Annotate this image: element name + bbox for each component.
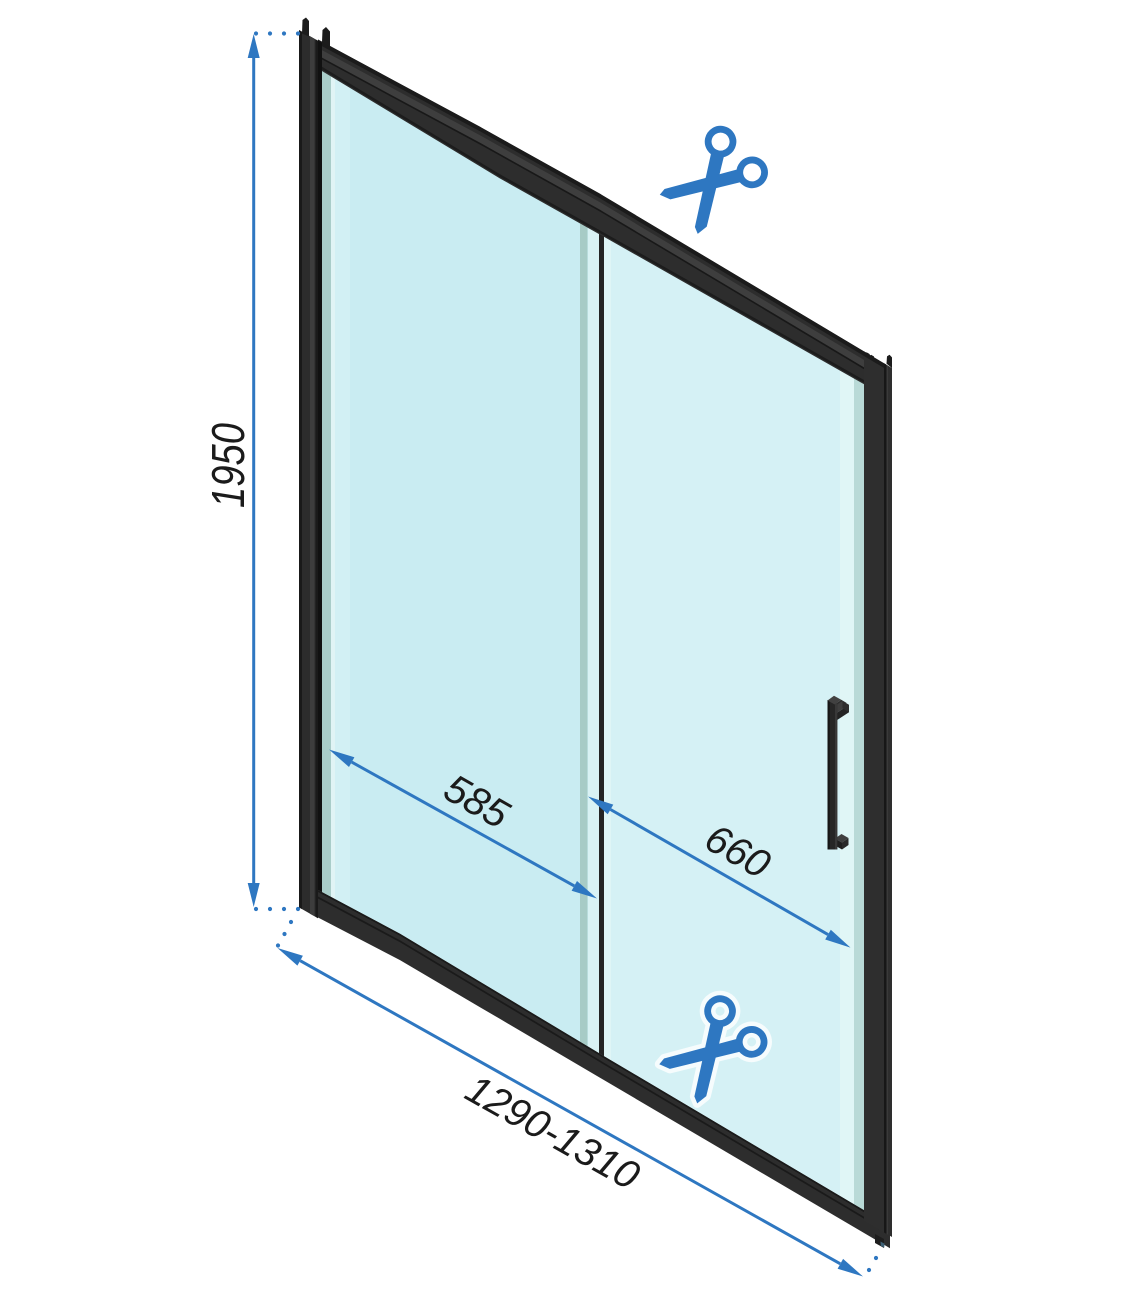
svg-text:1950: 1950 <box>203 423 254 508</box>
